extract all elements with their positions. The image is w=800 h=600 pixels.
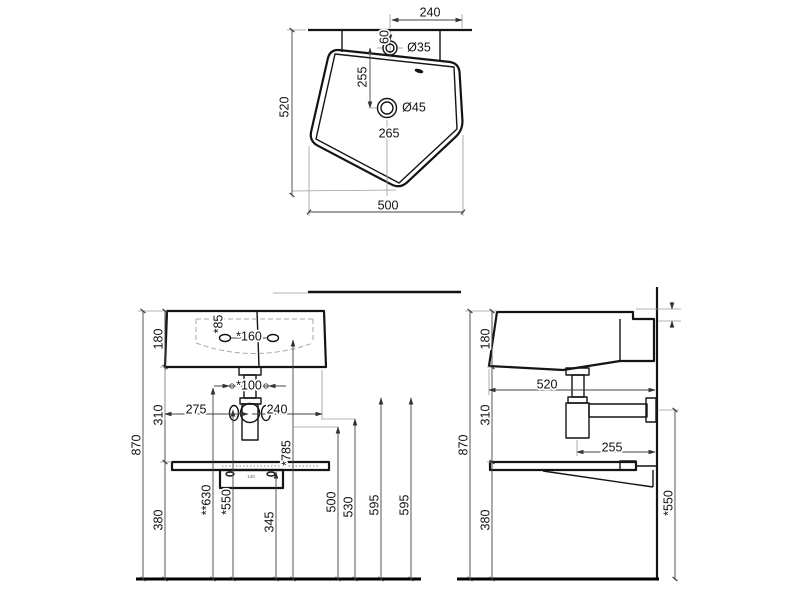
dim-label-front-100: *100 xyxy=(236,378,262,392)
dim-label-top-255: 255 xyxy=(355,67,369,88)
front-height-dimensions: **630 *550 345 *785 500 530 595 595 xyxy=(199,340,411,579)
top-view-dimensions: 240 60 Ø35 255 Ø45 265 520 500 xyxy=(277,5,463,216)
side-outlet-height-dimension: *550 xyxy=(659,410,679,579)
dim-label-top-500: 500 xyxy=(378,198,399,212)
top-view: 240 60 Ø35 255 Ø45 265 520 500 xyxy=(277,5,472,216)
dim-label-front-85: *85 xyxy=(211,315,225,334)
front-bracket: 140 xyxy=(220,470,283,488)
dim-label-top-240: 240 xyxy=(420,5,441,19)
dim-label-front-550: *550 xyxy=(219,489,233,515)
technical-drawing-canvas: 240 60 Ø35 255 Ø45 265 520 500 xyxy=(0,0,800,600)
dim-label-side-550: *550 xyxy=(661,490,675,516)
dim-label-top-265: 265 xyxy=(379,126,400,140)
dim-label-front-310: 310 xyxy=(151,405,165,426)
front-overflow-hole xyxy=(268,335,279,342)
dim-label-front-180: 180 xyxy=(151,329,165,350)
dim-label-front-160: *160 xyxy=(236,329,262,343)
drawing-page: 240 60 Ø35 255 Ø45 265 520 500 xyxy=(0,0,800,600)
side-step-dimension xyxy=(636,302,681,328)
side-shelf xyxy=(490,461,656,470)
dim-label-side-180: 180 xyxy=(478,329,492,350)
dim-label-front-240: 240 xyxy=(267,402,288,416)
side-view: 870 180 310 380 520 255 *550 xyxy=(456,287,681,579)
side-bracket xyxy=(543,470,653,487)
dim-label-front-500: 500 xyxy=(324,492,338,513)
dim-label-side-310: 310 xyxy=(478,405,492,426)
dim-label-side-520: 520 xyxy=(537,377,558,391)
dim-label-top-dia45: Ø45 xyxy=(402,100,426,114)
front-fixing-dimension: *100 xyxy=(214,378,286,392)
dim-label-front-345: 345 xyxy=(262,512,276,533)
dim-label-front-595b: 595 xyxy=(397,495,411,516)
dim-label-bracket-140: 140 xyxy=(247,474,255,479)
dim-label-front-595a: 595 xyxy=(367,495,381,516)
dim-label-side-380: 380 xyxy=(478,510,492,531)
dim-label-front-380: 380 xyxy=(151,510,165,531)
dim-label-front-785: *785 xyxy=(279,440,293,466)
dim-label-top-520: 520 xyxy=(277,97,291,118)
dim-label-top-dia35: Ø35 xyxy=(407,40,431,54)
side-trap xyxy=(566,368,656,438)
dim-label-front-275: 275 xyxy=(186,402,207,416)
dim-label-side-255: 255 xyxy=(602,440,623,454)
dim-label-front-530: 530 xyxy=(341,497,355,518)
dim-label-top-60: 60 xyxy=(377,30,391,44)
dim-label-side-870: 870 xyxy=(456,435,470,456)
front-faucet-hole xyxy=(220,335,231,342)
dim-label-front-630: **630 xyxy=(199,485,213,516)
side-basin-outline xyxy=(489,312,654,370)
overflow-hole xyxy=(414,68,424,74)
dim-label-front-870: 870 xyxy=(129,435,143,456)
basin-outline-inner xyxy=(316,54,457,183)
front-view: 140 870 180 310 380 *85 *160 xyxy=(129,292,461,579)
